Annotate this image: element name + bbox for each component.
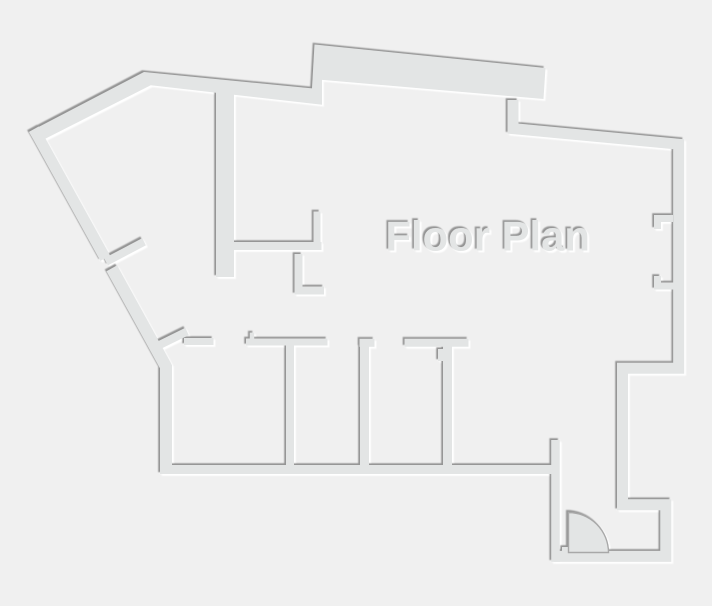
svg-text:Floor Plan: Floor Plan — [386, 213, 590, 260]
